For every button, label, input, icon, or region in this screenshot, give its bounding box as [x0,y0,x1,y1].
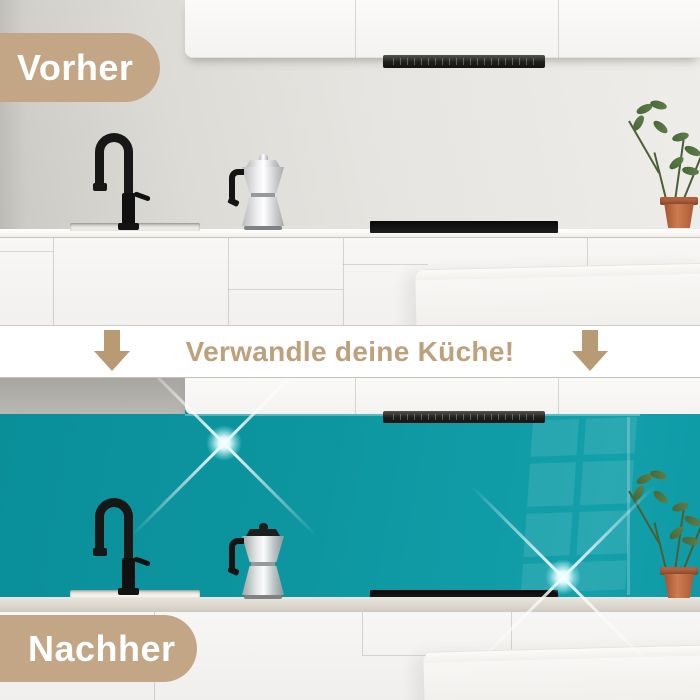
faucet-body [122,193,135,225]
drawer-seam [343,264,428,265]
moka-base [244,595,282,599]
reflection-pane [584,417,637,455]
moka-upper-chamber [242,167,284,193]
cabinet-seam [355,377,356,415]
kitchen-island [423,644,700,700]
plant-leaf [683,514,700,528]
plant-stem [653,522,668,573]
cabinet-seam [558,0,559,58]
moka-lid [246,160,280,167]
sparkle-core [545,559,581,595]
cabinet-seam [228,238,229,332]
arrow-head [572,351,608,371]
potted-plant [610,103,700,229]
after-badge: Nachher [0,615,197,682]
drawer-seam [362,655,431,656]
moka-upper-chamber [242,536,284,562]
island-front [424,655,700,700]
moka-knob [259,154,268,161]
drawer-seam [228,289,343,290]
arrow-shaft [582,330,598,351]
moka-pot [236,523,290,601]
cabinet-seam [558,377,559,415]
after-badge-label: Nachher [28,628,176,670]
moka-waist [251,562,275,566]
upper-cabinets [185,377,700,415]
cabinet-seam [355,0,356,58]
moka-lower-chamber [242,197,284,226]
plant-leaf [651,488,669,505]
cabinet-seam [362,612,363,655]
potted-plant [610,473,700,599]
before-scene: Vorher [0,0,700,332]
faucet-base [118,588,139,595]
plant-leaf [671,501,689,513]
hood-grille [393,414,536,420]
plant-leaf [671,131,689,143]
faucet-base [118,223,139,230]
moka-lid [246,529,280,536]
range-hood [383,411,545,423]
down-arrow-icon [572,330,608,372]
plant-pot [663,204,695,228]
plant-pot [663,574,695,598]
plant-leaf [631,114,646,133]
plant-pot-rim [660,567,698,575]
transform-banner: Verwandle deine Küche! [0,326,700,377]
wall-corner-shadow [0,377,185,415]
arrow-head [94,351,130,371]
arrow-shaft [104,330,120,351]
sparkle-core [206,425,242,461]
before-badge: Vorher [0,33,160,102]
before-after-comparison-image: Vorher Verwandle deine Küche! [0,0,700,700]
plant-leaf [651,118,669,135]
reflection-pane [527,462,576,507]
plant-stem [653,152,668,203]
upper-cabinets [185,0,700,58]
drawer-seam [0,251,53,252]
down-arrow-icon [94,330,130,372]
cabinet-seam [511,612,512,652]
after-scene: Nachher [0,377,700,700]
island-front [415,274,700,332]
plant-pot-rim [660,197,698,205]
cooktop [370,221,558,233]
reflection-pane [531,419,579,457]
moka-handle [229,169,244,201]
hood-grille [393,58,536,65]
plant-leaf [683,144,700,158]
cabinet-seam [343,238,344,332]
before-badge-label: Vorher [17,47,133,89]
moka-pot [236,154,290,232]
faucet [95,498,155,598]
reflection-pane [524,512,573,557]
moka-knob [259,523,268,530]
moka-base [244,226,282,230]
moka-lower-chamber [242,566,284,595]
range-hood [383,55,545,68]
moka-waist [251,193,275,197]
faucet-spout [93,183,107,191]
faucet-spout [93,548,107,556]
faucet-lever [133,556,151,567]
faucet-lever [133,191,151,202]
kitchen-island [415,263,700,332]
moka-handle [229,538,244,570]
faucet [95,133,155,233]
faucet-body [122,558,135,590]
cabinet-seam [53,238,54,332]
